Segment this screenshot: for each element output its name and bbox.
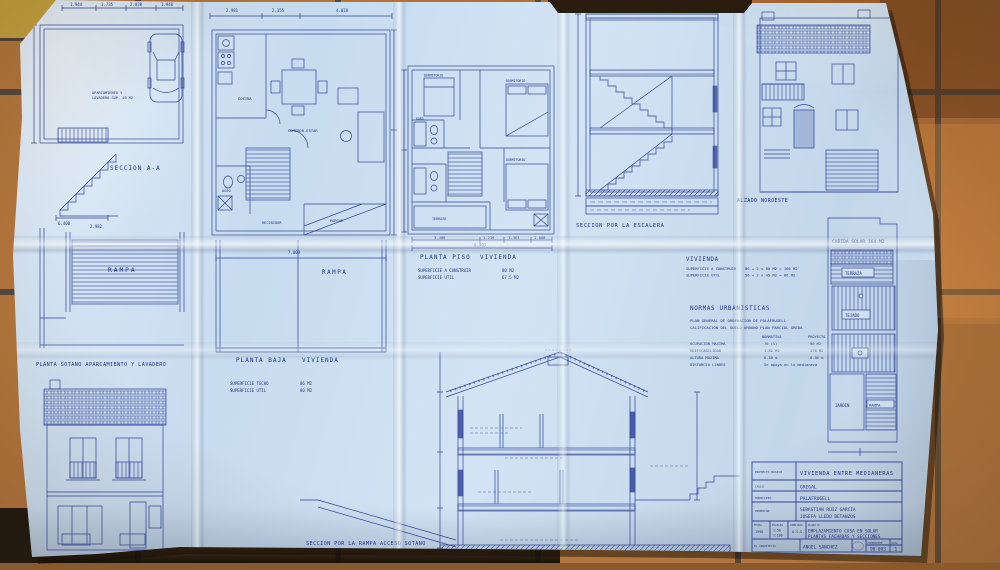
fold-crease — [733, 0, 747, 563]
seccion-escalera-label: SECCION POR LA ESCALERA — [576, 223, 665, 229]
solar-zone-label: TEJADO — [845, 313, 860, 318]
normas-title: NORMAS URBANISTICAS — [690, 305, 770, 312]
seccion-rampa-drawing — [300, 350, 740, 552]
sup-label: SUPERFICIE UTIL — [686, 273, 721, 278]
room-label: DORMITORIO — [424, 74, 443, 78]
alzado-noroeste-drawing — [757, 10, 898, 192]
dim-label: 2.981 — [226, 8, 239, 13]
titleblock-label: HOJA — [892, 541, 899, 545]
promoter-value: SEBASTIAN RUIZ GARCIA — [800, 507, 856, 513]
sheet-number: 1 — [895, 547, 898, 553]
planta-baja-drawing: 2.981 2.155 4.018 COCINA — [210, 8, 397, 235]
titleblock-label: PROYECTO BASICO — [755, 470, 782, 474]
date-value: 1998 — [755, 530, 763, 534]
fold-gap-shadow — [548, 0, 752, 14]
dim-label: 6.400 — [58, 221, 71, 226]
planta-baja-rampa-drawing: 7.003 RAMPA — [216, 240, 386, 352]
fold-crease — [0, 342, 940, 360]
room-label: BAÑO — [416, 116, 424, 121]
sup-value: 56 + 2 x 45 M2 = 86 M2 — [745, 273, 795, 278]
room-label: COCINA — [238, 96, 252, 101]
municipality-value: PALAFRUGELL — [800, 496, 831, 502]
seccion-rampa-label: SECCION POR LA RAMPA ACCESO SOTANO — [306, 541, 426, 547]
project-title: VIVIENDA ENTRE MEDIANERAS — [800, 471, 894, 477]
sup-value: 86 + 2 x 80 M2 = 166 M2 — [745, 266, 798, 271]
sup-value: 67.5 M2 — [502, 275, 519, 280]
car-symbol — [148, 34, 184, 102]
blueprint-paper: 1.944 1.735 2.038 1.948 APARCAMIENTO Y — [0, 0, 1000, 563]
titleblock-label: EXPEDIENTE — [868, 541, 884, 545]
title-block: PROYECTO BASICO VIVIENDA ENTRE MEDIANERA… — [752, 462, 902, 553]
titleblock-label: ESCALAS — [772, 523, 783, 527]
solar-zone-label: TERRAZA — [845, 271, 862, 276]
vivienda-title: VIVIENDA — [686, 257, 719, 263]
street-value: GREGAL — [800, 485, 817, 491]
normas-row: DISTANCIA LINDES — [690, 363, 726, 367]
dim-label: 4.018 — [336, 8, 349, 13]
seccion-aa-label: SECCION A-A — [110, 165, 161, 172]
sotano-plan-title: PLANTA SOTANO APARCAMIENTO Y LAVADERO — [36, 362, 166, 368]
fold-crease — [393, 0, 407, 563]
sup-label: SUPERFICIE UTIL — [230, 388, 267, 393]
titleblock-label: DIBUJADO — [790, 523, 803, 527]
blueprint-drawing: 1.944 1.735 2.038 1.948 APARCAMIENTO Y — [0, 0, 1000, 563]
room-note: LAVADERO SUP. 40 M2 — [92, 96, 133, 100]
titleblock-label: CALLE — [755, 485, 764, 489]
sheet-title: EMPLAZAMIENTO CASA EN SOLAR — [808, 529, 878, 535]
fold-crease — [0, 236, 940, 254]
room-label: DORMITORIO — [506, 158, 525, 162]
file-number: 98 003 — [870, 547, 886, 553]
fold-crease — [557, 0, 571, 563]
sup-label: SUPERFICIE A CONSTRUIR — [686, 266, 737, 271]
rampa-label: RAMPA — [108, 267, 137, 274]
room-label: DORMITORIO — [506, 79, 525, 83]
sup-value: 86 M2 — [300, 381, 313, 386]
sup-label: SUPERFICIE A CONSTRUIR — [418, 268, 472, 273]
solar-zone-label: RAMPA — [869, 403, 881, 408]
sup-value: 80 M2 — [300, 388, 313, 393]
stamp-mark — [853, 542, 864, 550]
planta-piso-title2: VIVIENDA — [480, 254, 517, 261]
photo-of-blueprints: 1.944 1.735 2.038 1.948 APARCAMIENTO Y — [0, 0, 1000, 563]
scale-value: 1:100 — [773, 534, 783, 538]
rampa-label: RAMPA — [322, 270, 347, 276]
titleblock-label: PLANO Nº — [808, 523, 821, 527]
sotano-plan-drawing: 1.944 1.735 2.038 1.948 APARCAMIENTO Y — [31, 2, 184, 143]
planta-piso-drawing: DORMITORIO DORMITORIO DORMITORIO BAÑO — [401, 66, 554, 251]
room-label: ASEO — [222, 189, 231, 193]
normas-col: PROYECTO — [808, 335, 825, 339]
room-label: PORCHE — [330, 219, 343, 223]
titleblock-label: PROMOTOR — [755, 509, 770, 513]
sup-label: SUPERFICIE UTIL — [418, 275, 455, 280]
titleblock-label: EL ARQUITECTO — [754, 544, 776, 548]
normas-val: Se apoya en la medianera — [764, 363, 817, 367]
titleblock-label: FECHA — [754, 523, 762, 527]
normas-col: NORMATIVA — [762, 335, 782, 339]
planta-piso-title: PLANTA PISO — [420, 254, 471, 261]
titleblock-label: MUNICIPIO — [755, 496, 771, 500]
dim-label: 1.735 — [101, 2, 114, 7]
sheet-title: PLANTAS FACHADAS Y SECCIONES — [808, 534, 881, 540]
seccion-escalera-drawing — [575, 14, 718, 214]
scale-value: 1:50 — [773, 529, 781, 533]
solar-zone-label: JARDIN — [835, 403, 850, 408]
dim-label: 2.155 — [272, 8, 285, 13]
sup-label: SUPERFICIE TECHO — [230, 381, 269, 386]
dim-label: 1.944 — [70, 2, 83, 7]
seccion-aa-drawing: 6.400 2.982 SECCION A-A — [56, 154, 161, 229]
architect-value: ANGEL SANCHEZ — [803, 545, 838, 551]
dim-label: 2.982 — [90, 224, 103, 229]
fold-crease — [191, 0, 205, 563]
dim-label: 1.948 — [161, 2, 174, 7]
promoter-value: JOSEFA LLEDO BETANZOS — [800, 514, 856, 520]
room-note: APARCAMIENTO Y — [92, 91, 123, 95]
alzado-norte-drawing: ALZADO NORTE — [44, 380, 184, 558]
sup-value: 80 M2 — [502, 268, 515, 273]
room-label: TERRAZA — [432, 217, 446, 221]
drafter-value: A.S.S. — [792, 530, 804, 534]
dim-label: 2.038 — [130, 2, 143, 7]
room-label: RECIBIDOR — [262, 221, 282, 225]
